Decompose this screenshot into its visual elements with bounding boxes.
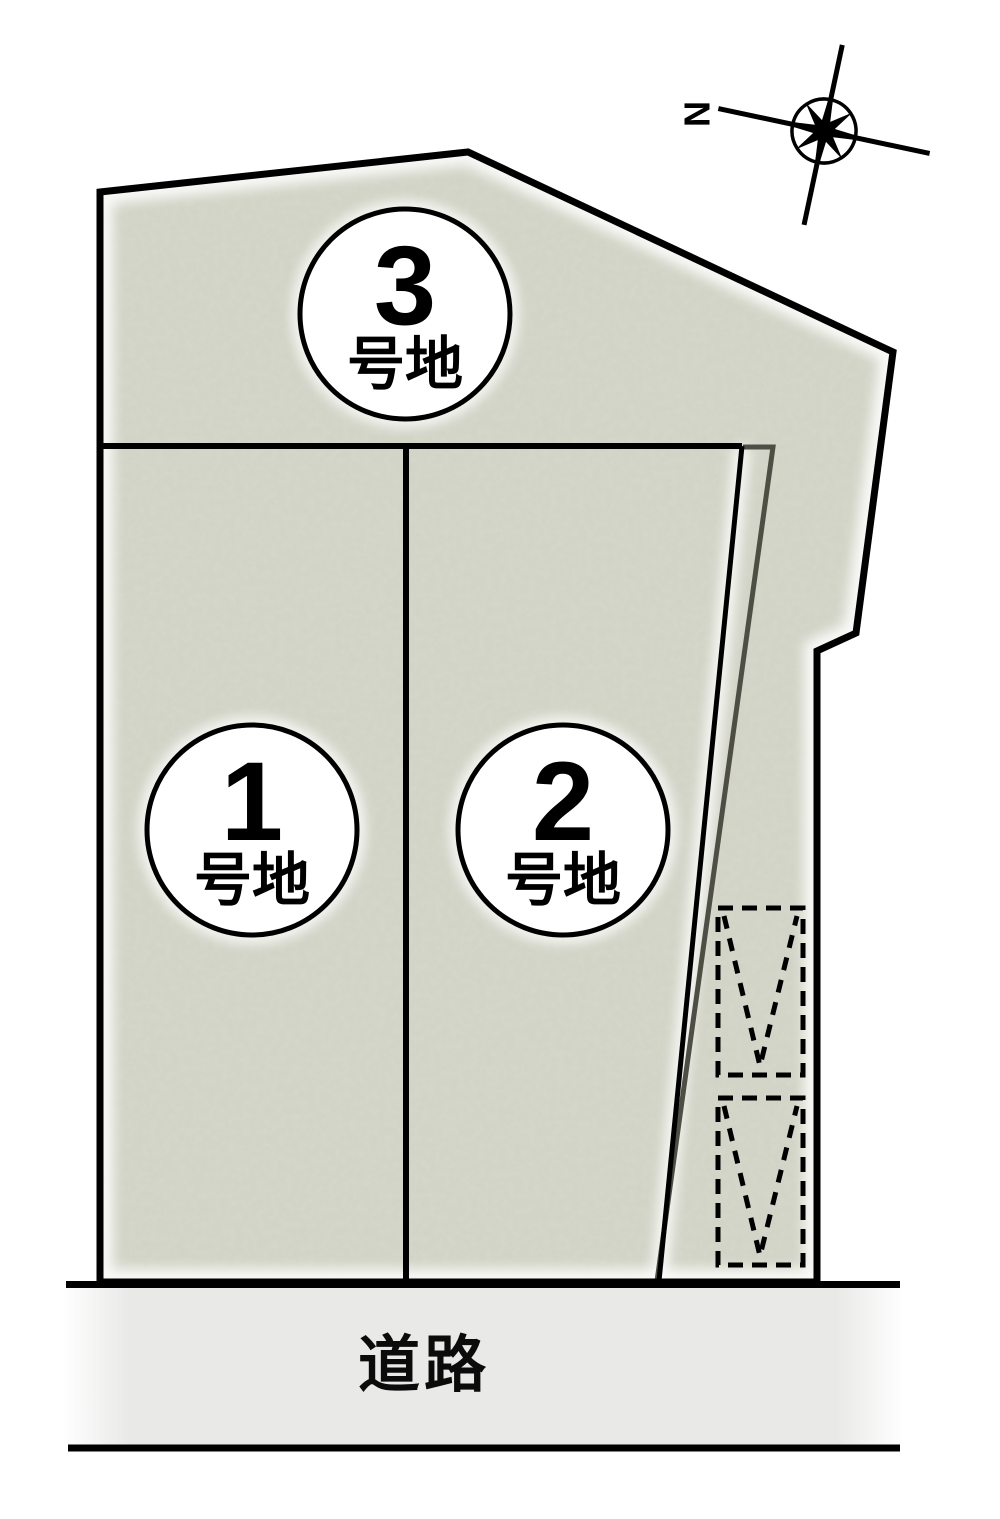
lot-1-number: 1 [221,739,283,864]
compass: N [677,22,948,247]
lot-2-badge: 2 号地 [458,725,668,935]
compass-star-icon [755,62,893,200]
lot-layout-diagram: 道路 [0,0,1000,1519]
lot-1-suffix: 号地 [194,848,310,913]
lot-1-badge: 1 号地 [147,725,357,935]
lot-2-number: 2 [532,739,594,864]
lot-3-badge: 3 号地 [300,209,510,419]
lot-3-number: 3 [374,223,436,348]
lot-2-suffix: 号地 [505,848,621,913]
lot-3-suffix: 号地 [347,332,463,397]
road: 道路 [62,1285,904,1449]
compass-north-label: N [677,101,718,127]
road-label: 道路 [358,1331,490,1400]
